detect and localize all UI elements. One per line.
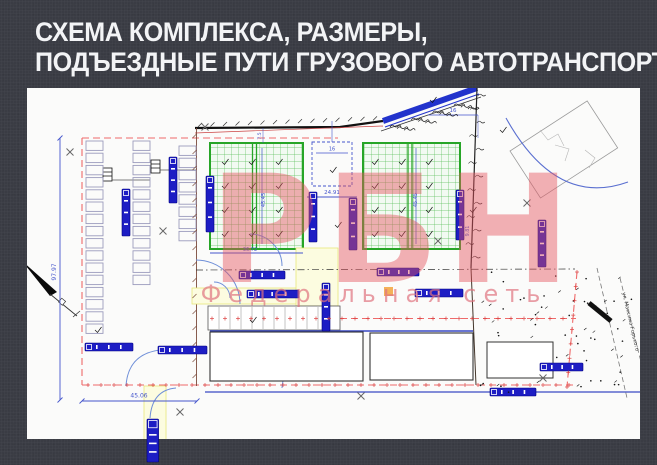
vegetation-dot	[583, 350, 585, 352]
dim-top-offset: 7.5	[257, 132, 263, 139]
truck-icon	[169, 157, 177, 203]
plan-detail	[524, 390, 526, 394]
plan-detail	[512, 390, 514, 394]
vegetation-dot	[585, 278, 587, 280]
plan-detail	[124, 223, 128, 225]
plan-detail	[181, 348, 183, 352]
vegetation-dot	[617, 328, 619, 330]
truck-icon	[490, 388, 536, 396]
truck-icon	[122, 189, 130, 236]
watermark-tagline: Федеральная сеть	[201, 280, 548, 308]
vegetation-dot	[619, 371, 621, 373]
truck-icon	[158, 346, 207, 354]
vegetation-dot	[498, 335, 500, 337]
south-building-3	[487, 342, 553, 378]
vegetation-dot	[587, 302, 589, 304]
vegetation-dot	[564, 334, 566, 336]
vegetation-dot	[577, 343, 579, 345]
vegetation-dot	[482, 383, 484, 385]
plan-detail	[572, 365, 574, 369]
machine-icon	[103, 168, 112, 181]
plan-detail	[149, 451, 157, 453]
vegetation-dot	[622, 340, 624, 342]
vegetation-dot	[508, 391, 510, 393]
vegetation-dot	[606, 312, 608, 314]
plan-detail	[169, 348, 171, 352]
plan-detail	[561, 365, 563, 369]
plan-detail	[501, 390, 503, 394]
south-building-1	[210, 332, 363, 381]
vegetation-dot	[586, 360, 588, 362]
dim-site-height: 97.97	[51, 263, 58, 280]
south-building-2	[370, 333, 473, 380]
plan-detail	[149, 434, 157, 436]
vegetation-dot	[497, 332, 499, 334]
vegetation-dot	[535, 324, 537, 326]
plan-detail	[171, 191, 175, 193]
vegetation-dot	[613, 300, 615, 302]
plan-detail	[149, 443, 157, 445]
plan-detail	[120, 345, 122, 349]
dim-top-right: 16	[450, 108, 457, 114]
truck-icon	[540, 363, 583, 371]
vegetation-dot	[556, 357, 558, 359]
watermark: РБН Федеральная сеть	[201, 144, 577, 318]
vegetation-dot	[590, 337, 592, 339]
vegetation-dot	[580, 386, 582, 388]
plan-detail	[124, 200, 128, 202]
plan-detail	[194, 348, 196, 352]
vegetation-dot	[600, 380, 602, 382]
slide: СХЕМА КОМПЛЕКСА, РАЗМЕРЫ, ПОДЪЕЗДНЫЕ ПУТ…	[0, 0, 657, 465]
plan-detail	[171, 168, 175, 170]
truck-icon	[85, 343, 133, 351]
vegetation-dot	[584, 301, 586, 303]
dim-site-width: 45.06	[130, 393, 147, 400]
vegetation-dot	[631, 298, 633, 300]
vegetation-dot	[595, 305, 597, 307]
vegetation-dot	[590, 380, 592, 382]
vegetation-dot	[618, 384, 620, 386]
plan-detail	[96, 345, 98, 349]
machine-icon	[151, 160, 160, 173]
plan-detail	[171, 179, 175, 181]
vegetation-dot	[576, 335, 578, 337]
vegetation-dot	[500, 386, 502, 388]
plan-detail	[551, 365, 553, 369]
site-plan: ул. Максима Горького	[0, 0, 657, 465]
vegetation-dot	[594, 339, 596, 341]
plan-detail	[124, 212, 128, 214]
plan-detail	[108, 345, 110, 349]
truck-icon	[147, 419, 159, 462]
overflow-truck-layer	[147, 419, 159, 462]
vegetation-dot	[614, 384, 616, 386]
